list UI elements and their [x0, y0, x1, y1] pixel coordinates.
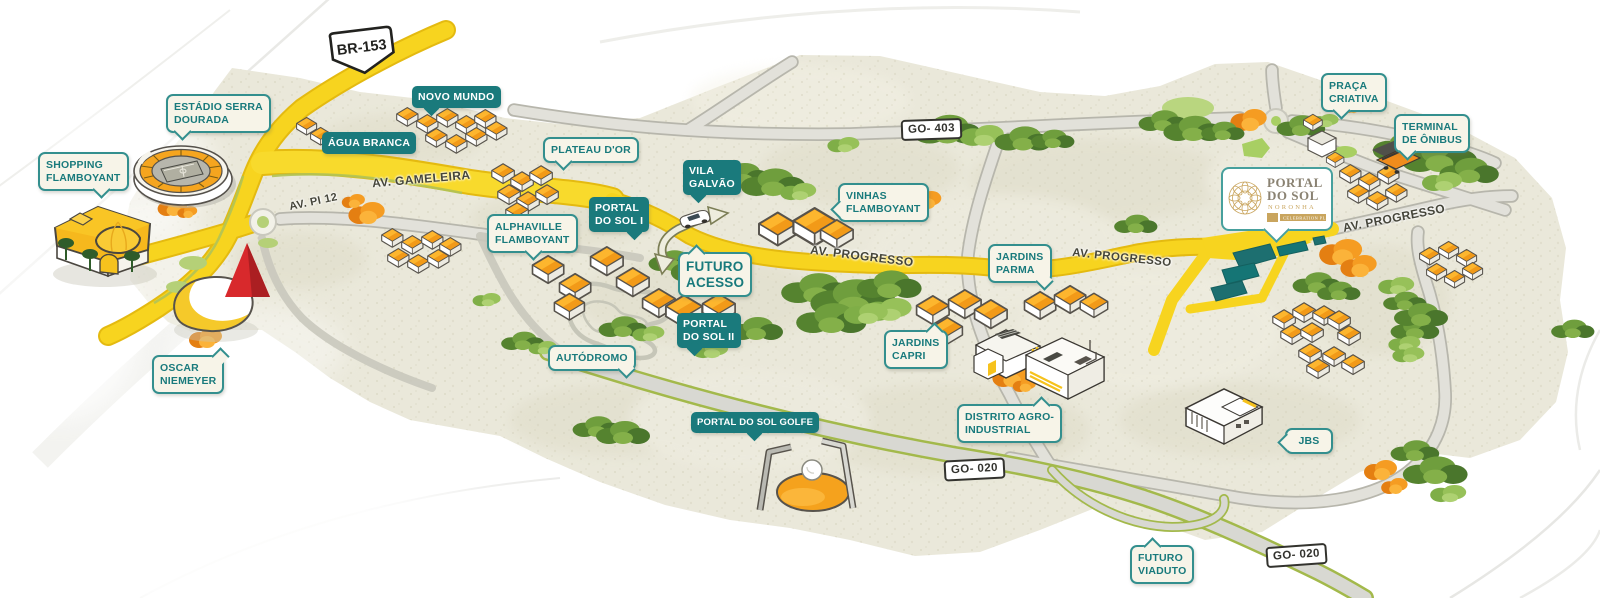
svg-text:NORONHA: NORONHA: [1268, 204, 1316, 211]
svg-text:CELEBRATION PLACES: CELEBRATION PLACES: [1283, 216, 1331, 221]
svg-text:DO SOL: DO SOL: [1267, 188, 1319, 203]
